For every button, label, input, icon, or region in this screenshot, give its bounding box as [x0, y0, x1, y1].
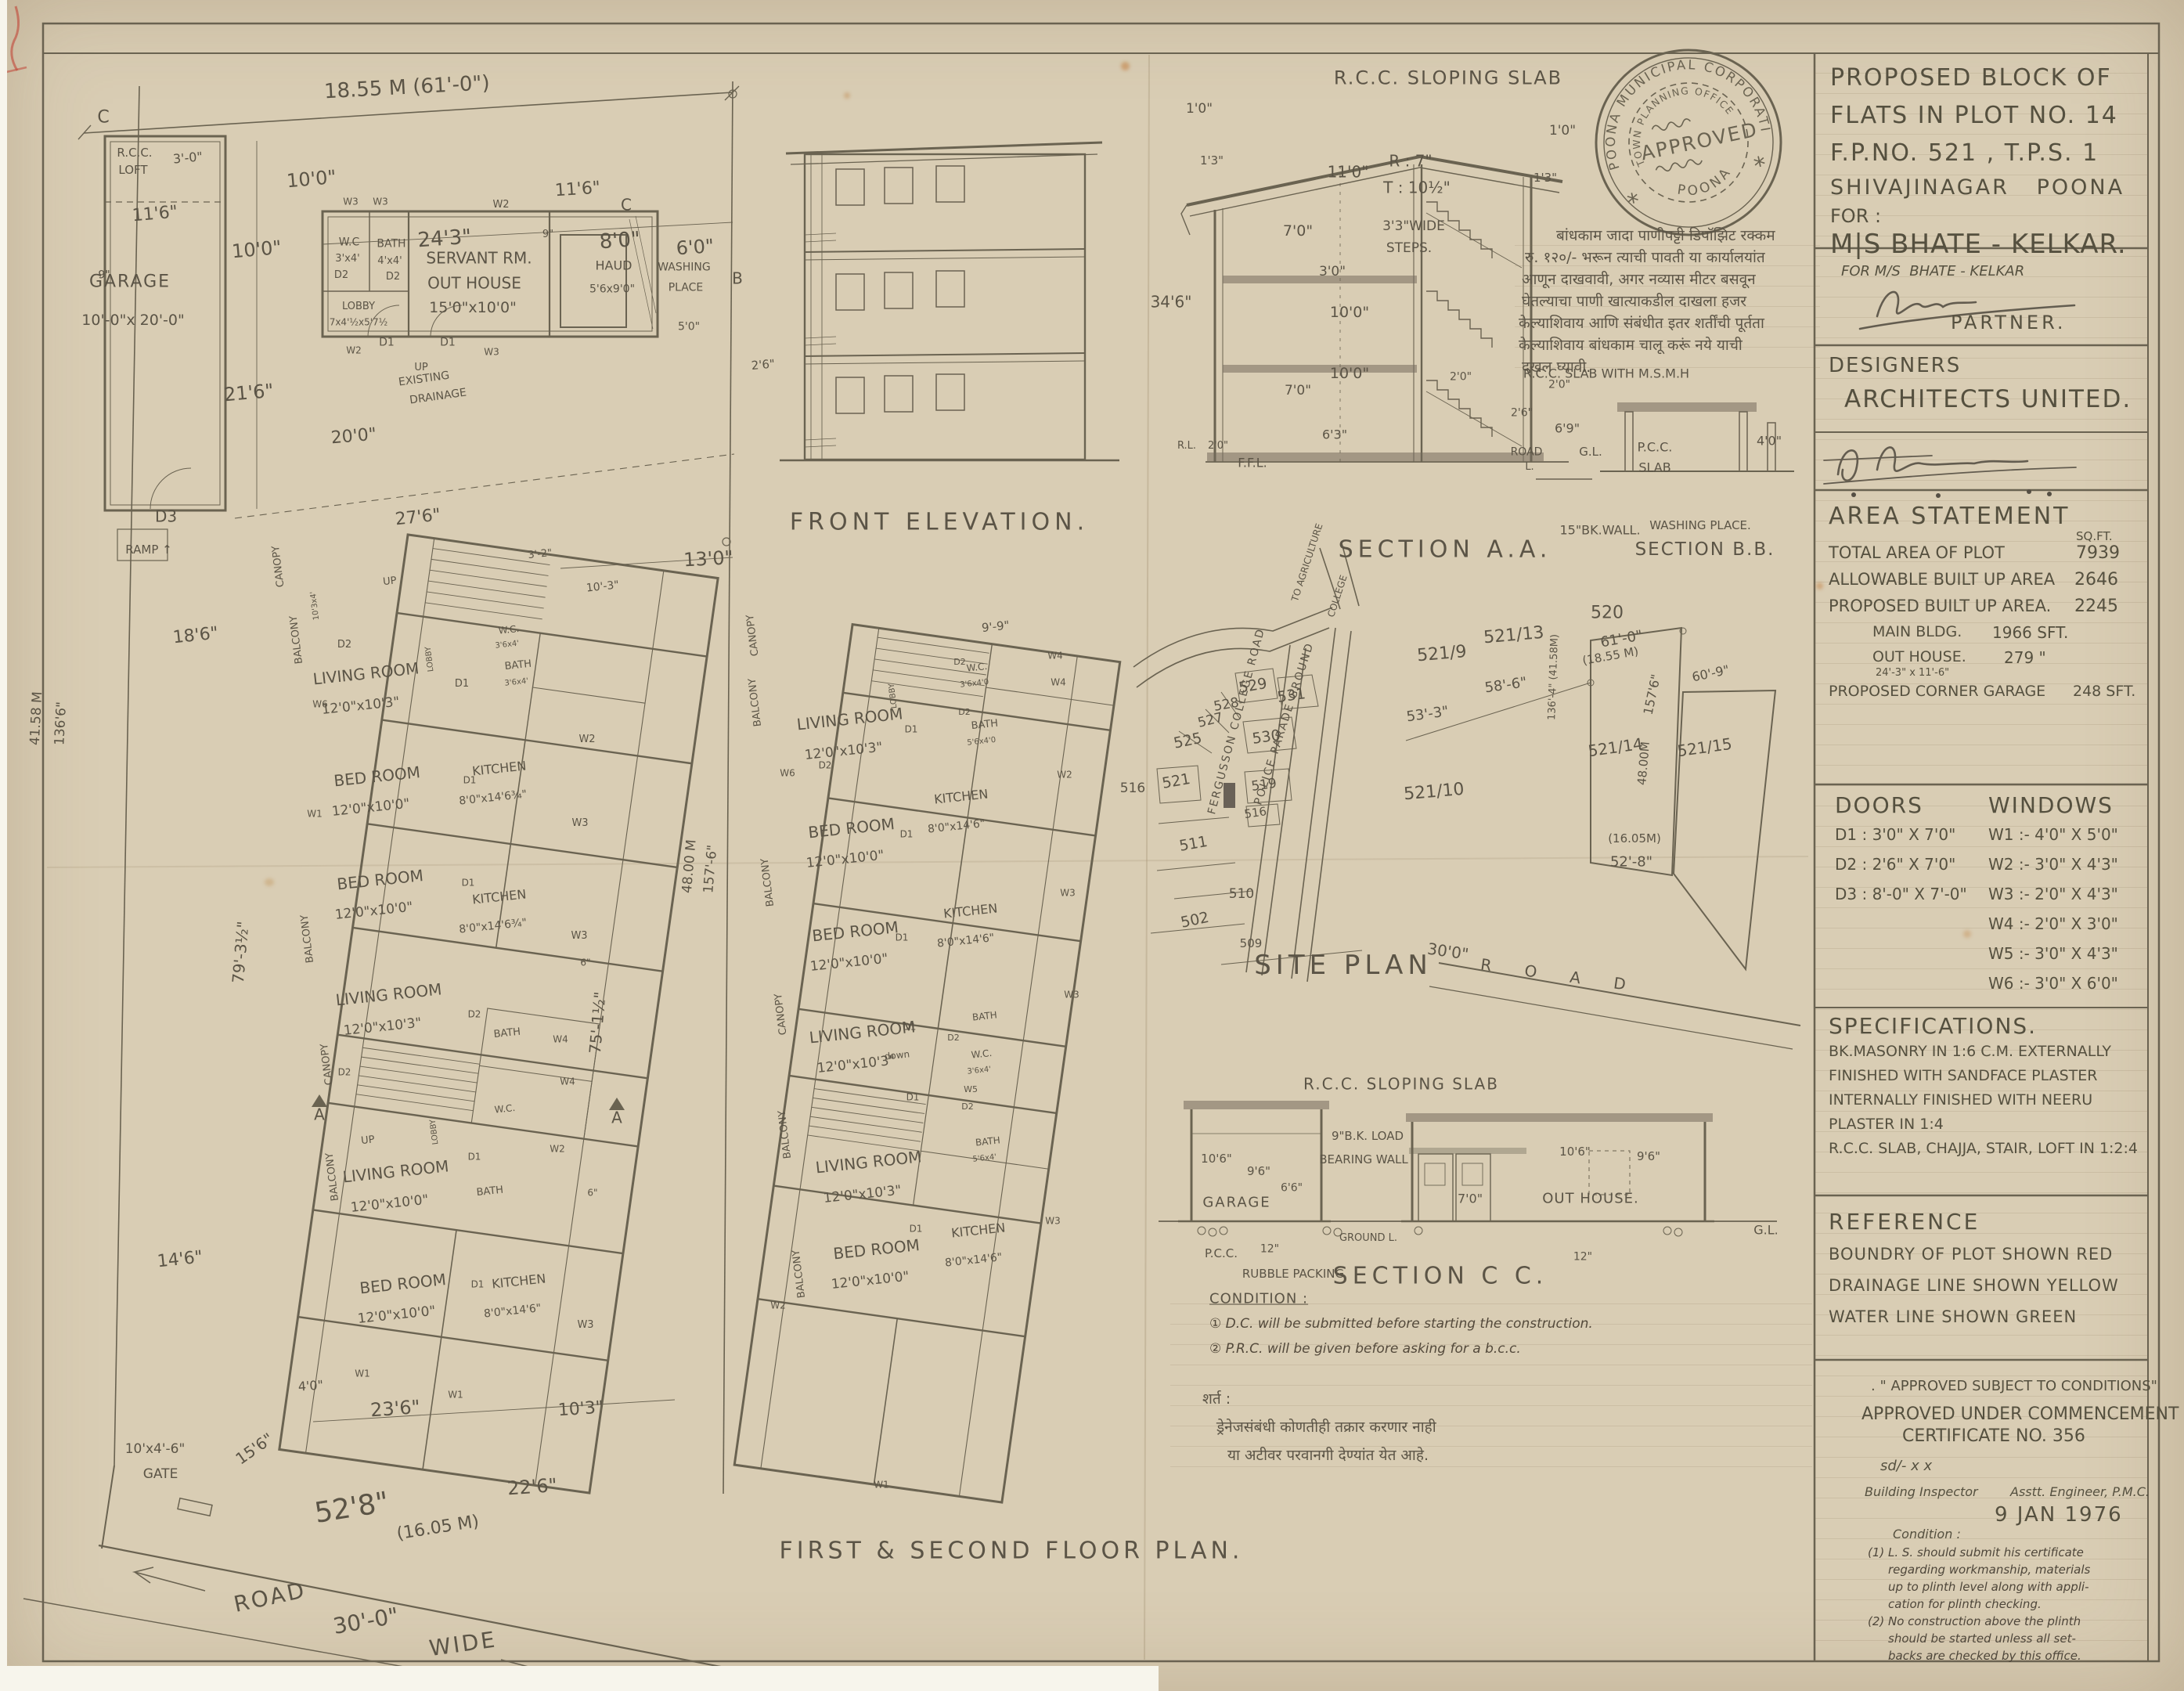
- list-item: W5 :- 3'0" X 4'3": [1988, 944, 2118, 974]
- reference-heading: REFERENCE: [1829, 1209, 1980, 1235]
- area-row-label: PROPOSED BUILT UP AREA.: [1829, 597, 2051, 615]
- list-item: D2 : 2'6" X 7'0": [1835, 855, 1967, 885]
- windows-heading: WINDOWS: [1988, 792, 2114, 818]
- list-item: D1 : 3'0" X 7'0": [1835, 825, 1967, 855]
- project-location: SHIVAJINAGAR POONA: [1830, 175, 2125, 200]
- area-unit-label: SQ.FT.: [2076, 529, 2113, 543]
- area-row-sublabel: 24'-3" x 11'-6": [1876, 667, 1949, 679]
- title-block: PROPOSED BLOCK OF FLATS IN PLOT NO. 14 F…: [0, 0, 2184, 1691]
- paper-stain: [1121, 62, 1130, 70]
- doors-heading: DOORS: [1835, 792, 1923, 818]
- project-title-line2: FLATS IN PLOT NO. 14: [1830, 102, 2118, 129]
- area-row-value: 279 ": [2004, 648, 2046, 667]
- blueprint-sheet: POONA MUNICIPAL CORPORATION TOWN PLANNIN…: [0, 0, 2184, 1691]
- paper-stain: [1963, 930, 1971, 938]
- project-title-line1: PROPOSED BLOCK OF: [1830, 64, 2112, 92]
- scanned-blueprint-page: { "title": { "l1": "PROPOSED BLOCK OF", …: [0, 0, 2184, 1691]
- list-item: BOUNDRY OF PLOT SHOWN RED: [1829, 1245, 2119, 1276]
- paper-stain: [1816, 582, 1823, 590]
- paper-stain: [844, 92, 850, 99]
- list-item: W3 :- 2'0" X 4'3": [1988, 885, 2118, 914]
- area-row-value: 2245: [2074, 597, 2118, 616]
- list-item: W4 :- 2'0" X 3'0": [1988, 914, 2118, 944]
- area-row-value: 7939: [2076, 543, 2120, 563]
- list-item: (2) No construction above the plinth: [1868, 1614, 2090, 1632]
- reference-list: BOUNDRY OF PLOT SHOWN REDDRAINAGE LINE S…: [1829, 1245, 2119, 1339]
- list-item: cation for plinth checking.: [1868, 1597, 2090, 1614]
- specifications-list: BK.MASONRY IN 1:6 C.M. EXTERNALLYFINISHE…: [1829, 1043, 2138, 1164]
- list-item: up to plinth level along with appli-: [1868, 1580, 2090, 1597]
- approval-line2: CERTIFICATE NO. 356: [1902, 1426, 2085, 1446]
- partner-label: PARTNER.: [1951, 312, 2067, 334]
- area-row-label: MAIN BLDG.: [1872, 623, 1962, 640]
- area-row-label: PROPOSED CORNER GARAGE: [1829, 683, 2045, 700]
- approval-sd-mark: sd/- x x: [1880, 1458, 1932, 1474]
- condition-heading: Condition :: [1893, 1527, 1961, 1541]
- list-item: W1 :- 4'0" X 5'0": [1988, 825, 2118, 855]
- area-row-label: TOTAL AREA OF PLOT: [1829, 543, 2005, 562]
- approval-date-stamp: 9 JAN 1976: [1995, 1503, 2123, 1527]
- area-row-value: 2646: [2074, 570, 2118, 590]
- approval-subject-line: . " APPROVED SUBJECT TO CONDITIONS": [1871, 1378, 2157, 1394]
- scan-edge-bottom: [0, 1666, 1159, 1691]
- list-item: D3 : 8'-0" X 7'-0": [1835, 885, 1967, 914]
- paper-stain: [265, 878, 274, 886]
- client-signature-label: FOR M/S BHATE - KELKAR: [1841, 263, 2024, 279]
- designers-label: DESIGNERS: [1829, 354, 1961, 377]
- area-statement-heading: AREA STATEMENT: [1829, 503, 2070, 530]
- project-for-label: FOR :: [1830, 205, 1881, 227]
- asst-engineer-label: Asstt. Engineer, P.M.C.: [2010, 1484, 2150, 1499]
- list-item: FINISHED WITH SANDFACE PLASTER: [1829, 1067, 2138, 1091]
- approval-conditions-list: (1) L. S. should submit his certificater…: [1868, 1545, 2090, 1666]
- list-item: INTERNALLY FINISHED WITH NEERU: [1829, 1091, 2138, 1116]
- list-item: WATER LINE SHOWN GREEN: [1829, 1307, 2119, 1339]
- doors-list: D1 : 3'0" X 7'0"D2 : 2'6" X 7'0"D3 : 8'-…: [1835, 825, 1967, 914]
- building-inspector-label: Building Inspector: [1865, 1484, 1978, 1499]
- scan-edge-left: [0, 0, 7, 1691]
- list-item: regarding workmanship, materials: [1868, 1563, 2090, 1580]
- area-row-label: OUT HOUSE.: [1872, 648, 1966, 665]
- area-row-value: 1966 SFT.: [1992, 623, 2068, 642]
- list-item: W2 :- 3'0" X 4'3": [1988, 855, 2118, 885]
- list-item: PLASTER IN 1:4: [1829, 1116, 2138, 1140]
- project-title-line3: F.P.NO. 521 , T.P.S. 1: [1830, 139, 2099, 167]
- designers-name: ARCHITECTS UNITED.: [1844, 385, 2132, 413]
- client-name: M|S BHATE - KELKAR.: [1830, 229, 2127, 260]
- list-item: should be started unless all set-: [1868, 1632, 2090, 1649]
- list-item: W6 :- 3'0" X 6'0": [1988, 974, 2118, 1004]
- list-item: backs are checked by this office.: [1868, 1649, 2090, 1666]
- specifications-heading: SPECIFICATIONS.: [1829, 1013, 2037, 1039]
- list-item: R.C.C. SLAB, CHAJJA, STAIR, LOFT IN 1:2:…: [1829, 1140, 2138, 1164]
- list-item: BK.MASONRY IN 1:6 C.M. EXTERNALLY: [1829, 1043, 2138, 1067]
- list-item: DRAINAGE LINE SHOWN YELLOW: [1829, 1276, 2119, 1307]
- area-row-label: ALLOWABLE BUILT UP AREA: [1829, 570, 2055, 589]
- area-row-value: 248 SFT.: [2073, 683, 2135, 700]
- list-item: (1) L. S. should submit his certificate: [1868, 1545, 2090, 1563]
- approval-line1: APPROVED UNDER COMMENCEMENT: [1861, 1404, 2179, 1424]
- windows-list: W1 :- 4'0" X 5'0"W2 :- 3'0" X 4'3"W3 :- …: [1988, 825, 2118, 1004]
